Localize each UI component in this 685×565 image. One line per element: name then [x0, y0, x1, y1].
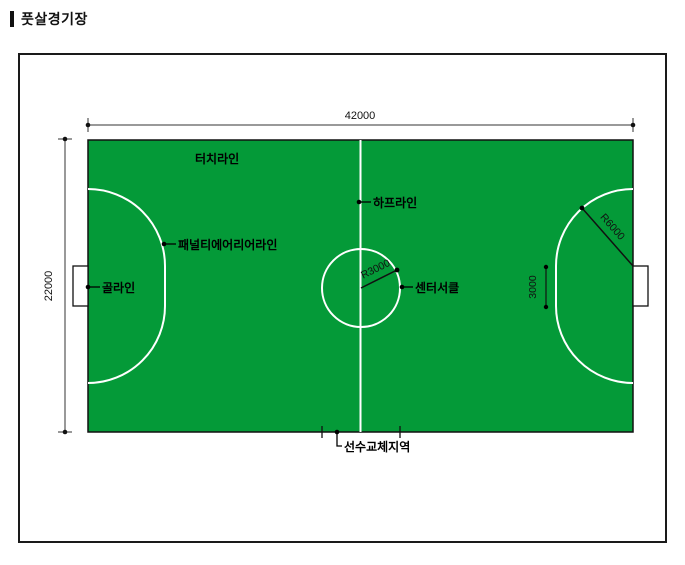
futsal-field-diagram: 42000 22000 R3000 R6000 3000 터치라인 — [0, 0, 685, 565]
dimension-left-height — [58, 137, 72, 435]
dimension-height-value: 22000 — [43, 271, 55, 302]
goal-box-left — [73, 266, 88, 306]
label-center-circle: 센터서클 — [415, 280, 459, 295]
label-half-line: 하프라인 — [373, 195, 417, 210]
goal-box-right — [633, 266, 648, 306]
dimension-width-value: 42000 — [345, 110, 376, 122]
dimension-goal-straight-value: 3000 — [527, 275, 539, 299]
label-substitution-zone: 선수교체지역 — [344, 439, 410, 454]
label-goal-line: 골라인 — [102, 280, 135, 295]
label-penalty-area-line: 패널티에어리어라인 — [178, 237, 277, 252]
label-touchline: 터치라인 — [195, 151, 239, 166]
